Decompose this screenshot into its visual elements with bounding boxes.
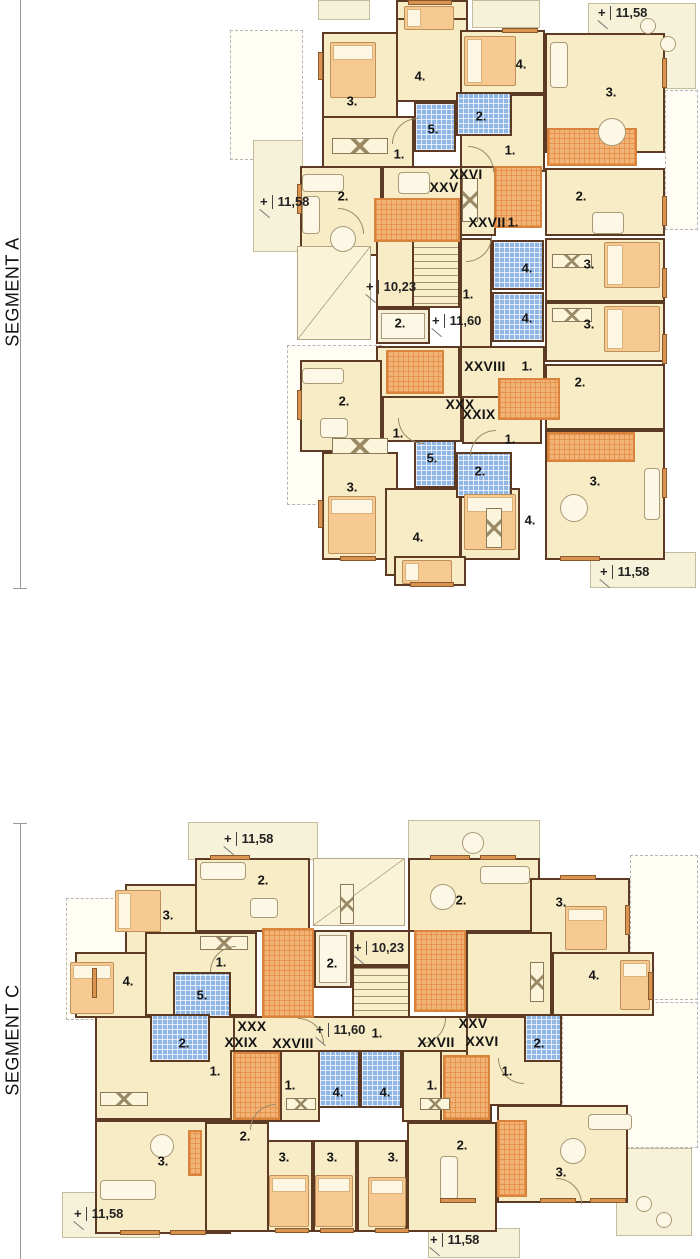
room-number-label: 4. [123, 975, 134, 988]
plus-sign: + [74, 1207, 86, 1221]
room-number-label: 4. [516, 58, 527, 71]
furniture [440, 1156, 458, 1200]
room-number-label: 5. [427, 452, 438, 465]
window [408, 0, 452, 5]
furniture [550, 42, 568, 88]
window [375, 1228, 409, 1233]
room-number-label: 1. [285, 1079, 296, 1092]
elevation-value: 11,58 [442, 1233, 480, 1247]
apartment-number-label: XXVI [465, 1034, 498, 1048]
room-number-label: 3. [347, 95, 358, 108]
elevation-marker: +11,58 [74, 1207, 123, 1221]
kitchen-counter [497, 1120, 527, 1197]
apartment-number-label: XXX [238, 1019, 267, 1033]
room-number-label: 2. [576, 190, 587, 203]
plus-sign: + [366, 280, 378, 294]
kitchen-counter [374, 198, 460, 242]
plus-sign: + [600, 565, 612, 579]
bed [315, 1175, 353, 1227]
bed [565, 906, 607, 950]
bed [368, 1177, 406, 1227]
plus-sign: + [432, 314, 444, 328]
room-number-label: 3. [163, 909, 174, 922]
plus-sign: + [354, 941, 366, 955]
window [625, 905, 630, 935]
wardrobe [340, 884, 354, 924]
room-number-label: 2. [327, 957, 338, 970]
apartment-number-label: XXVII [417, 1035, 454, 1049]
bathroom-tiles [492, 240, 544, 290]
wardrobe [286, 1098, 316, 1110]
segment-c-title: SEGMENT C [3, 984, 24, 1095]
wardrobe [420, 1098, 450, 1110]
room-number-label: 2. [457, 1139, 468, 1152]
apartment-number-label: XXV [459, 1016, 488, 1030]
room-number-label: 4. [333, 1086, 344, 1099]
room-number-label: 1. [505, 144, 516, 157]
window [502, 28, 538, 33]
room-number-label: 1. [427, 1079, 438, 1092]
room-number-label: 3. [556, 896, 567, 909]
room-number-label: 3. [590, 475, 601, 488]
room-number-label: 2. [338, 190, 349, 203]
window [318, 52, 323, 80]
room-area [205, 1122, 269, 1232]
room-number-label: 5. [197, 989, 208, 1002]
round-table [430, 884, 456, 910]
window [440, 1198, 476, 1203]
elevation-value: 11,60 [328, 1023, 366, 1037]
elevation-value: 10,23 [378, 280, 417, 294]
room-number-label: 3. [584, 258, 595, 271]
window [662, 334, 667, 364]
round-table [560, 494, 588, 522]
plus-sign: + [260, 195, 272, 209]
divider-tick [13, 823, 27, 824]
round-table [560, 1138, 586, 1164]
bed [330, 42, 376, 98]
window [560, 556, 600, 561]
room-number-label: 1. [393, 427, 404, 440]
elevation-marker: +11,60 [316, 1023, 365, 1037]
room-number-label: 2. [395, 317, 406, 330]
room-number-label: 2. [456, 894, 467, 907]
wardrobe [332, 438, 388, 454]
window [275, 1228, 309, 1233]
kitchen-counter [414, 930, 466, 1012]
window [560, 875, 596, 880]
kitchen-counter [443, 1055, 490, 1120]
furniture [250, 898, 278, 918]
window [430, 855, 470, 860]
apartment-number-label: XXVIII [464, 359, 505, 373]
kitchen-counter [262, 928, 314, 1018]
furniture [644, 468, 660, 520]
room-number-label: 1. [508, 216, 519, 229]
window [318, 500, 323, 528]
room-number-label: 1. [216, 956, 227, 969]
room-number-label: 2. [240, 1130, 251, 1143]
window [297, 390, 302, 420]
window [662, 196, 667, 226]
elevation-value: 11,58 [272, 195, 310, 209]
room-number-label: 2. [258, 874, 269, 887]
wardrobe [332, 138, 388, 154]
window [92, 968, 97, 998]
kitchen-counter [386, 350, 444, 394]
elevation-value: 11,58 [86, 1207, 124, 1221]
balcony-area [472, 0, 540, 28]
window [648, 972, 653, 1000]
floor-plan-canvas: SEGMENT A SEGMENT C 3.4.4.3.5.2.1.1.XXVI… [0, 0, 700, 1259]
elevation-marker: +11,58 [224, 832, 273, 846]
segment-a-title: SEGMENT A [3, 237, 24, 346]
room-number-label: 2. [339, 395, 350, 408]
room-number-label: 1. [522, 360, 533, 373]
plus-sign: + [598, 6, 610, 20]
room-number-label: 1. [210, 1065, 221, 1078]
kitchen-counter [188, 1130, 202, 1176]
elevation-value: 11,58 [612, 565, 650, 579]
bathroom-tiles [492, 292, 544, 342]
room-number-label: 3. [606, 86, 617, 99]
elevation-value: 11,58 [236, 832, 274, 846]
terrace-area [297, 246, 371, 340]
furniture [398, 172, 430, 194]
room-number-label: 3. [347, 481, 358, 494]
window [590, 1198, 626, 1203]
room-number-label: 1. [372, 1027, 383, 1040]
elevation-marker: +11,58 [598, 6, 647, 20]
room-area [376, 238, 414, 308]
apartment-number-label: XXV [430, 180, 459, 194]
staircase [412, 238, 460, 308]
furniture [480, 866, 530, 884]
window [662, 268, 667, 298]
room-number-label: 2. [179, 1037, 190, 1050]
room-number-label: 4. [380, 1086, 391, 1099]
furniture [100, 1180, 156, 1200]
apartment-number-label: XXIX [224, 1035, 257, 1049]
plus-sign: + [316, 1023, 328, 1037]
furniture [592, 212, 624, 234]
window [662, 468, 667, 498]
room-number-label: 5. [428, 123, 439, 136]
round-table [640, 18, 656, 34]
bed [404, 6, 454, 30]
apartment-number-label: XXVII [468, 215, 505, 229]
room-number-label: 3. [158, 1155, 169, 1168]
room-number-label: 3. [556, 1166, 567, 1179]
wardrobe [100, 1092, 148, 1106]
plus-sign: + [430, 1233, 442, 1247]
round-table [462, 832, 484, 854]
bed [328, 496, 376, 554]
room-number-label: 4. [522, 312, 533, 325]
elevation-value: 10,23 [366, 941, 405, 955]
staircase [352, 966, 410, 1018]
elevation-marker: +10,23 [354, 941, 404, 955]
room-number-label: 1. [502, 1065, 513, 1078]
furniture [200, 862, 246, 880]
room-number-label: 2. [475, 465, 486, 478]
window [410, 582, 454, 587]
kitchen-counter [498, 378, 560, 420]
room-number-label: 2. [534, 1037, 545, 1050]
elevation-value: 11,60 [444, 314, 482, 328]
window [340, 556, 376, 561]
wardrobe [486, 508, 502, 548]
window [120, 1230, 160, 1235]
window [170, 1230, 206, 1235]
round-table [636, 1196, 652, 1212]
bed [464, 36, 516, 86]
room-number-label: 4. [589, 969, 600, 982]
room-number-label: 3. [279, 1151, 290, 1164]
room-number-label: 4. [522, 262, 533, 275]
kitchen-counter [547, 432, 635, 462]
bed [620, 960, 650, 1010]
bed [604, 306, 660, 352]
bed [115, 890, 161, 932]
room-number-label: 3. [388, 1151, 399, 1164]
bed [604, 242, 660, 288]
room-area [396, 18, 468, 102]
room-number-label: 4. [413, 531, 424, 544]
terrace-area [313, 858, 405, 926]
bed [402, 560, 452, 584]
room-number-label: 1. [505, 433, 516, 446]
room-number-label: 2. [575, 376, 586, 389]
apartment-number-label: XXIX [462, 407, 495, 421]
furniture [302, 368, 344, 384]
room-number-label: 1. [394, 148, 405, 161]
room-number-label: 1. [463, 288, 474, 301]
balcony-area [318, 0, 370, 20]
wardrobe [530, 962, 544, 1002]
room-number-label: 2. [476, 110, 487, 123]
furniture [588, 1114, 632, 1130]
elevation-marker: +11,58 [260, 195, 309, 209]
room-area [402, 1050, 444, 1122]
bed [269, 1175, 309, 1227]
room-number-label: 3. [584, 318, 595, 331]
furniture [320, 418, 348, 438]
elevation-marker: +11,60 [432, 314, 481, 328]
round-table [660, 36, 676, 52]
room-number-label: 4. [415, 70, 426, 83]
room-number-label: 4. [525, 514, 536, 527]
round-table [598, 118, 626, 146]
window [210, 855, 250, 860]
window [662, 58, 667, 88]
round-table [656, 1212, 672, 1228]
apartment-number-label: XXVIII [272, 1036, 313, 1050]
window [480, 855, 516, 860]
room-area [545, 364, 665, 430]
room-number-label: 3. [327, 1151, 338, 1164]
elevation-marker: +11,58 [600, 565, 649, 579]
elevation-marker: +11,58 [430, 1233, 479, 1247]
window [320, 1228, 354, 1233]
elevation-value: 11,58 [610, 6, 648, 20]
plus-sign: + [224, 832, 236, 846]
elevation-marker: +10,23 [366, 280, 416, 294]
